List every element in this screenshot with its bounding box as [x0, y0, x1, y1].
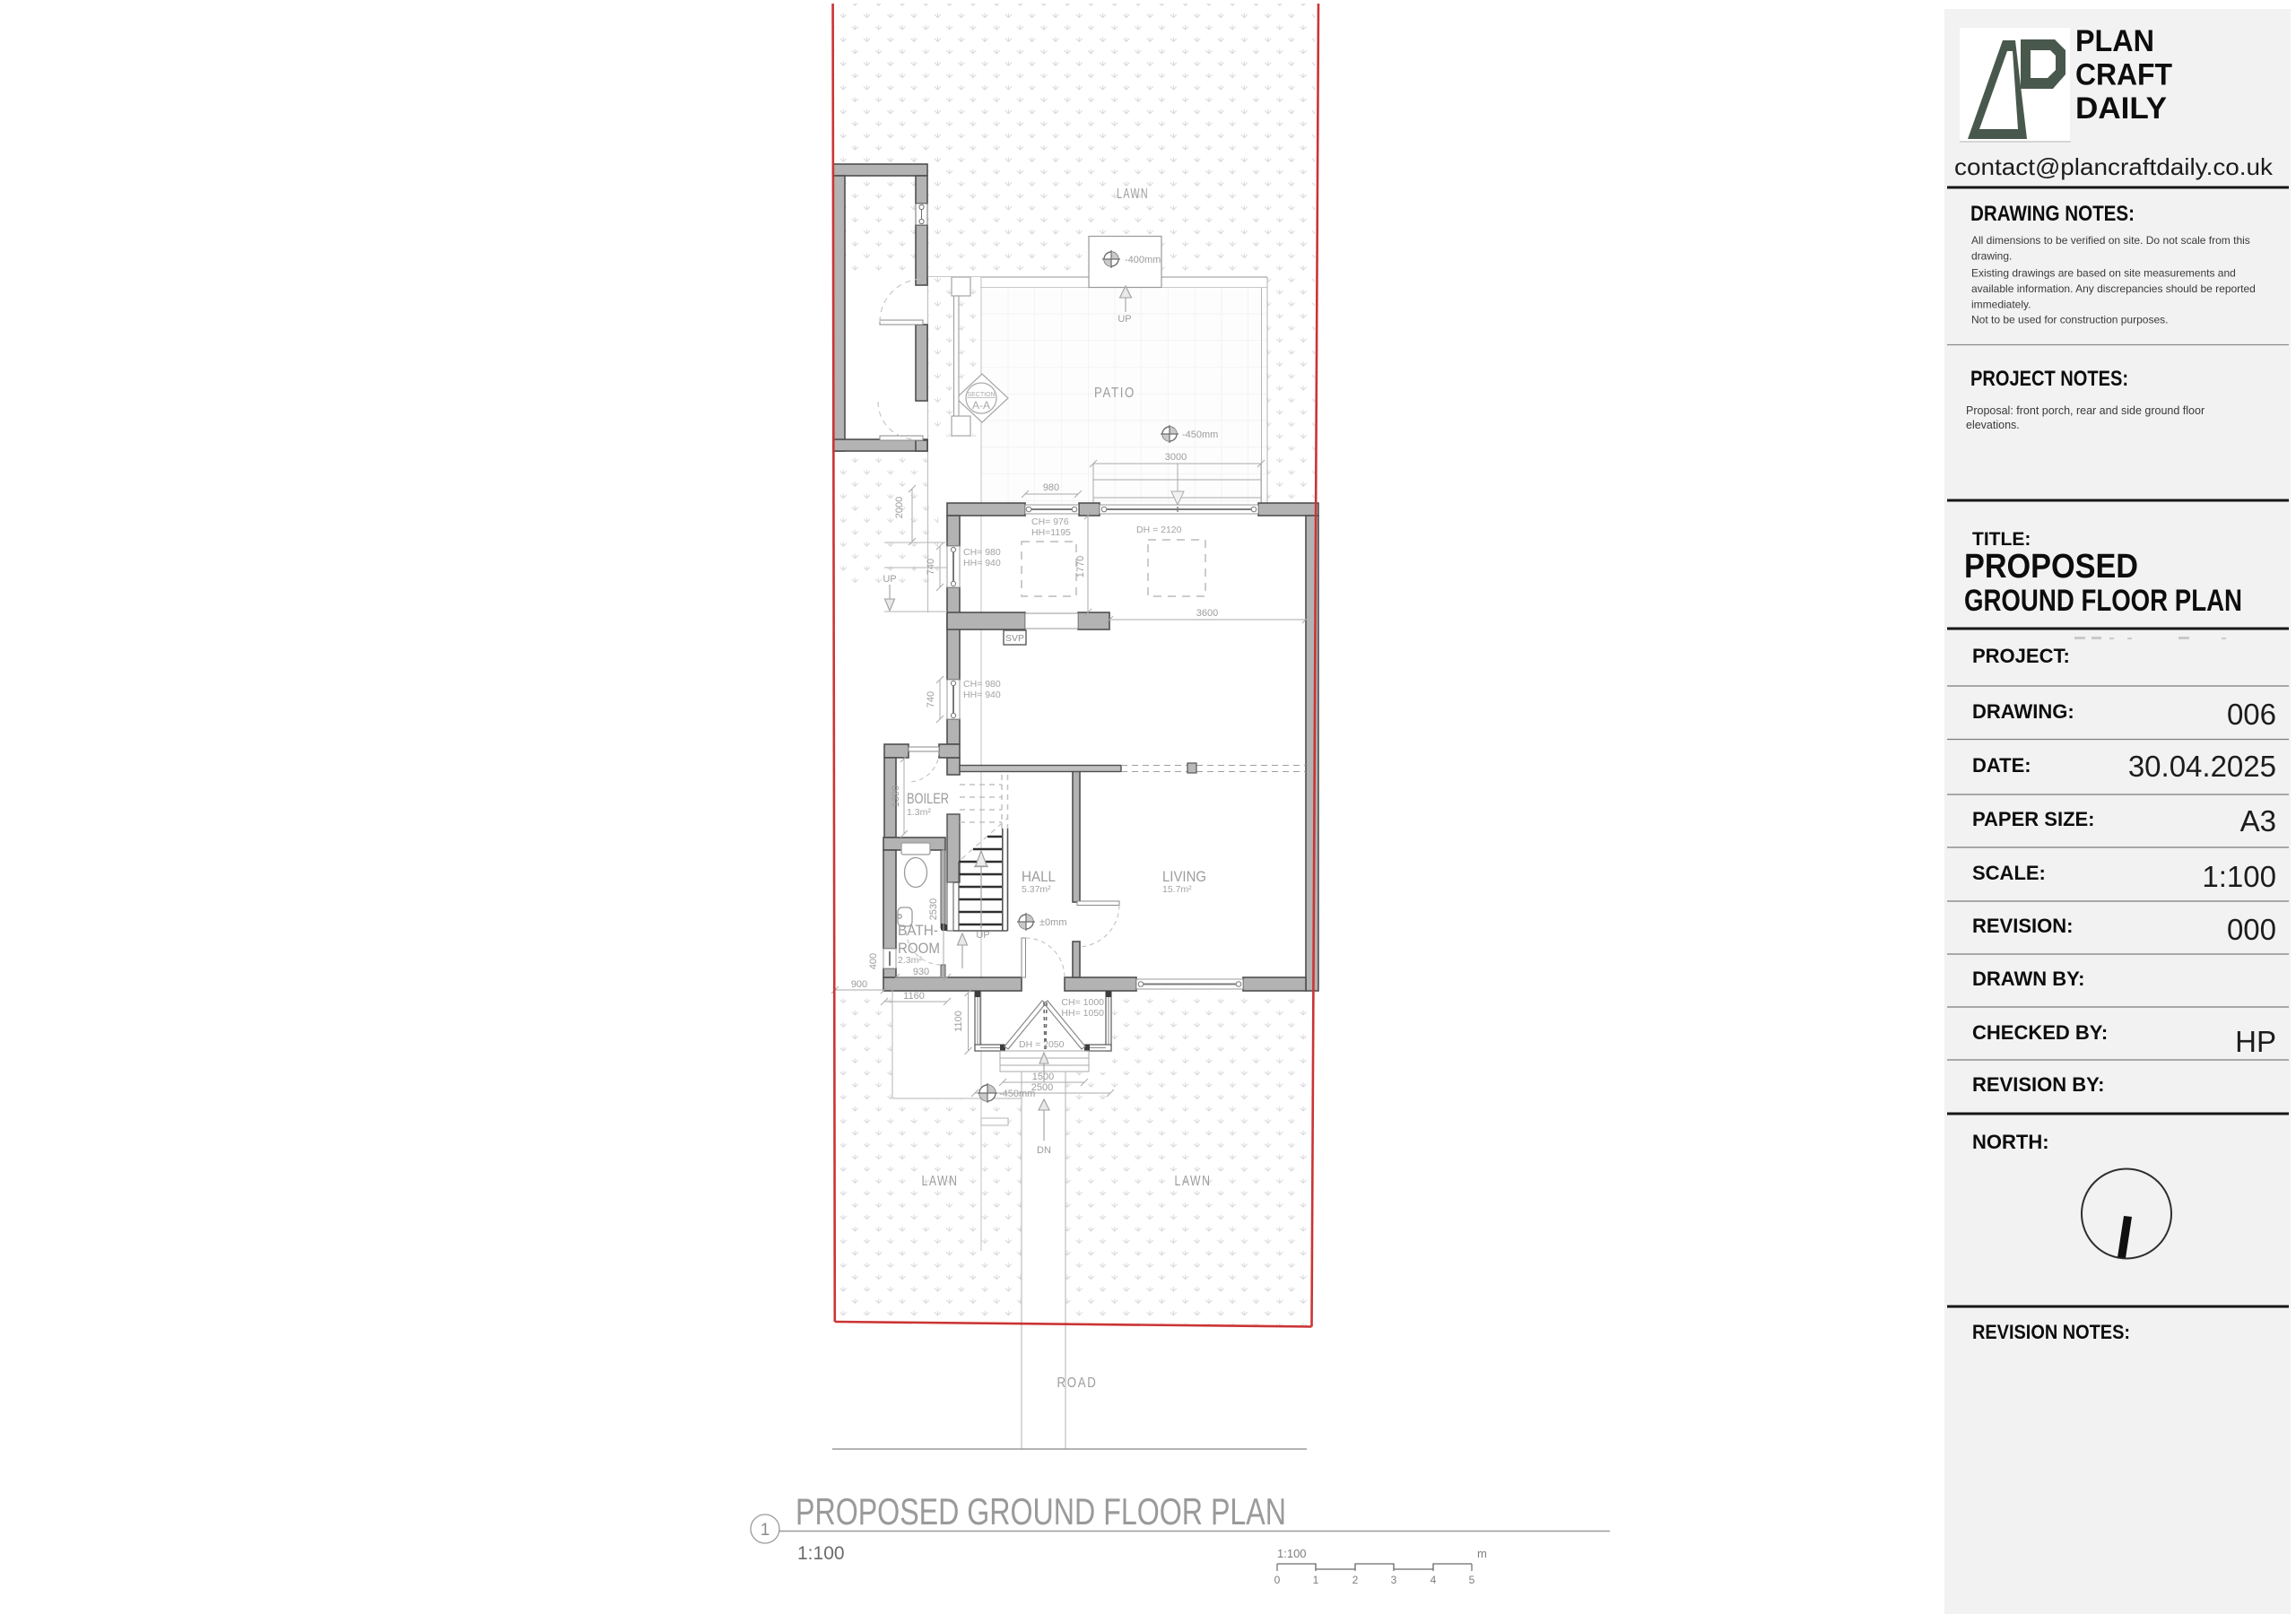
svg-text:DH = 2050: DH = 2050	[1019, 1039, 1065, 1050]
svg-text:1:100: 1:100	[1277, 1547, 1307, 1560]
svg-text:CHECKED BY:: CHECKED BY:	[1972, 1021, 2108, 1044]
svg-text:1.3m²: 1.3m²	[907, 807, 931, 818]
svg-text:m: m	[1477, 1547, 1487, 1560]
svg-text:Not to be used for constructio: Not to be used for construction purposes…	[1971, 314, 2168, 326]
svg-text:980: 980	[1043, 482, 1059, 493]
svg-text:930: 930	[913, 967, 929, 977]
svg-text:2.3m²: 2.3m²	[898, 955, 922, 966]
svg-text:0: 0	[1274, 1574, 1281, 1586]
svg-text:5: 5	[1469, 1574, 1475, 1586]
svg-text:3: 3	[1391, 1574, 1397, 1586]
svg-text:3000: 3000	[1165, 452, 1187, 463]
svg-text:PROJECT NOTES:: PROJECT NOTES:	[1970, 367, 2128, 391]
svg-text:DRAWING:: DRAWING:	[1972, 700, 2074, 723]
svg-text:A-A: A-A	[972, 399, 990, 412]
svg-text:CH= 1000: CH= 1000	[1061, 997, 1104, 1008]
svg-text:BOILER: BOILER	[907, 790, 949, 807]
svg-text:HALL: HALL	[1022, 868, 1056, 885]
svg-text:000: 000	[2227, 913, 2276, 946]
svg-text:NORTH:: NORTH:	[1972, 1131, 2049, 1153]
svg-text:ROAD: ROAD	[1057, 1376, 1098, 1391]
svg-text:1770: 1770	[1075, 556, 1086, 577]
svg-text:-450mm: -450mm	[1182, 430, 1218, 440]
svg-text:DH = 2120: DH = 2120	[1136, 525, 1182, 535]
svg-text:CH= 976: CH= 976	[1031, 516, 1069, 527]
svg-text:DN: DN	[1037, 1145, 1051, 1156]
svg-text:LIVING: LIVING	[1162, 868, 1206, 885]
svg-text:HP: HP	[2235, 1025, 2276, 1058]
svg-text:-450mm: -450mm	[999, 1089, 1035, 1099]
svg-text:006: 006	[2227, 698, 2276, 731]
svg-text:CH= 980: CH= 980	[963, 679, 1001, 690]
svg-text:PROJECT:: PROJECT:	[1972, 645, 2070, 667]
svg-text:2: 2	[1352, 1574, 1359, 1586]
svg-text:CH= 980: CH= 980	[963, 547, 1001, 558]
svg-text:PROPOSED GROUND FLOOR PLAN: PROPOSED GROUND FLOOR PLAN	[796, 1490, 1286, 1532]
svg-text:UP: UP	[883, 574, 896, 585]
svg-text:LAWN: LAWN	[922, 1174, 959, 1189]
svg-text:HH= 940: HH= 940	[963, 558, 1001, 568]
svg-text:1:100: 1:100	[2202, 860, 2276, 893]
svg-text:-400mm: -400mm	[1125, 255, 1161, 265]
svg-text:Proposal: front porch, rear an: Proposal: front porch, rear and side gro…	[1966, 404, 2205, 417]
svg-text:REVISION NOTES:: REVISION NOTES:	[1972, 1321, 2130, 1343]
svg-text:PAPER SIZE:: PAPER SIZE:	[1972, 808, 2095, 830]
svg-text:SECTION: SECTION	[967, 392, 995, 398]
svg-text:SVP: SVP	[1005, 633, 1024, 644]
svg-text:available information. Any dis: available information. Any discrepancies…	[1971, 282, 2256, 295]
svg-text:30.04.2025: 30.04.2025	[2128, 750, 2276, 783]
svg-text:contact@plancraftdaily.co.uk: contact@plancraftdaily.co.uk	[1954, 153, 2274, 180]
svg-text:±0mm: ±0mm	[1039, 917, 1066, 928]
svg-text:TITLE:: TITLE:	[1972, 529, 2031, 550]
svg-text:SCALE:: SCALE:	[1972, 862, 2046, 884]
svg-text:15.7m²: 15.7m²	[1162, 884, 1192, 895]
svg-text:400: 400	[868, 953, 879, 969]
svg-text:DATE:: DATE:	[1972, 754, 2031, 777]
svg-text:BATH-: BATH-	[898, 922, 938, 939]
svg-text:2000: 2000	[894, 497, 905, 518]
svg-text:UP: UP	[1118, 314, 1131, 325]
svg-text:1390: 1390	[891, 785, 901, 807]
svg-text:1:100: 1:100	[797, 1543, 845, 1564]
svg-text:1: 1	[761, 1521, 770, 1540]
svg-text:A3: A3	[2240, 804, 2276, 838]
svg-text:PATIO: PATIO	[1094, 386, 1135, 401]
svg-text:HH=1195: HH=1195	[1031, 527, 1071, 538]
svg-text:drawing.: drawing.	[1971, 249, 2012, 262]
svg-text:DRAWING NOTES:: DRAWING NOTES:	[1970, 202, 2135, 226]
svg-text:HH= 1050: HH= 1050	[1061, 1008, 1104, 1019]
svg-text:CRAFT: CRAFT	[2075, 58, 2172, 92]
svg-text:REVISION BY:: REVISION BY:	[1972, 1073, 2105, 1096]
svg-text:LAWN: LAWN	[1117, 187, 1149, 202]
svg-text:Existing drawings are based on: Existing drawings are based on site meas…	[1971, 267, 2236, 280]
svg-text:GROUND FLOOR PLAN: GROUND FLOOR PLAN	[1964, 584, 2242, 618]
svg-text:immediately.: immediately.	[1971, 298, 2031, 310]
svg-text:740: 740	[926, 559, 936, 575]
svg-text:REVISION:: REVISION:	[1972, 915, 2073, 937]
svg-text:DAILY: DAILY	[2075, 91, 2167, 126]
svg-text:PROPOSED: PROPOSED	[1964, 548, 2138, 586]
svg-text:1160: 1160	[903, 991, 925, 1002]
svg-text:740: 740	[926, 691, 936, 707]
svg-text:1100: 1100	[953, 1011, 964, 1032]
svg-text:4: 4	[1431, 1574, 1437, 1586]
svg-text:900: 900	[851, 979, 867, 990]
svg-text:UP: UP	[976, 930, 989, 941]
svg-text:LAWN: LAWN	[1175, 1174, 1212, 1189]
svg-text:HH= 940: HH= 940	[963, 690, 1001, 700]
svg-text:All dimensions to be verified: All dimensions to be verified on site. D…	[1971, 234, 2250, 247]
svg-text:5.37m²: 5.37m²	[1022, 884, 1051, 895]
svg-text:2530: 2530	[928, 898, 939, 920]
svg-text:3600: 3600	[1196, 608, 1218, 619]
svg-text:1: 1	[1313, 1574, 1319, 1586]
svg-text:1500: 1500	[1032, 1072, 1054, 1082]
svg-text:DRAWN BY:: DRAWN BY:	[1972, 968, 2084, 990]
svg-text:PLAN: PLAN	[2075, 24, 2154, 58]
svg-text:elevations.: elevations.	[1966, 419, 2020, 431]
